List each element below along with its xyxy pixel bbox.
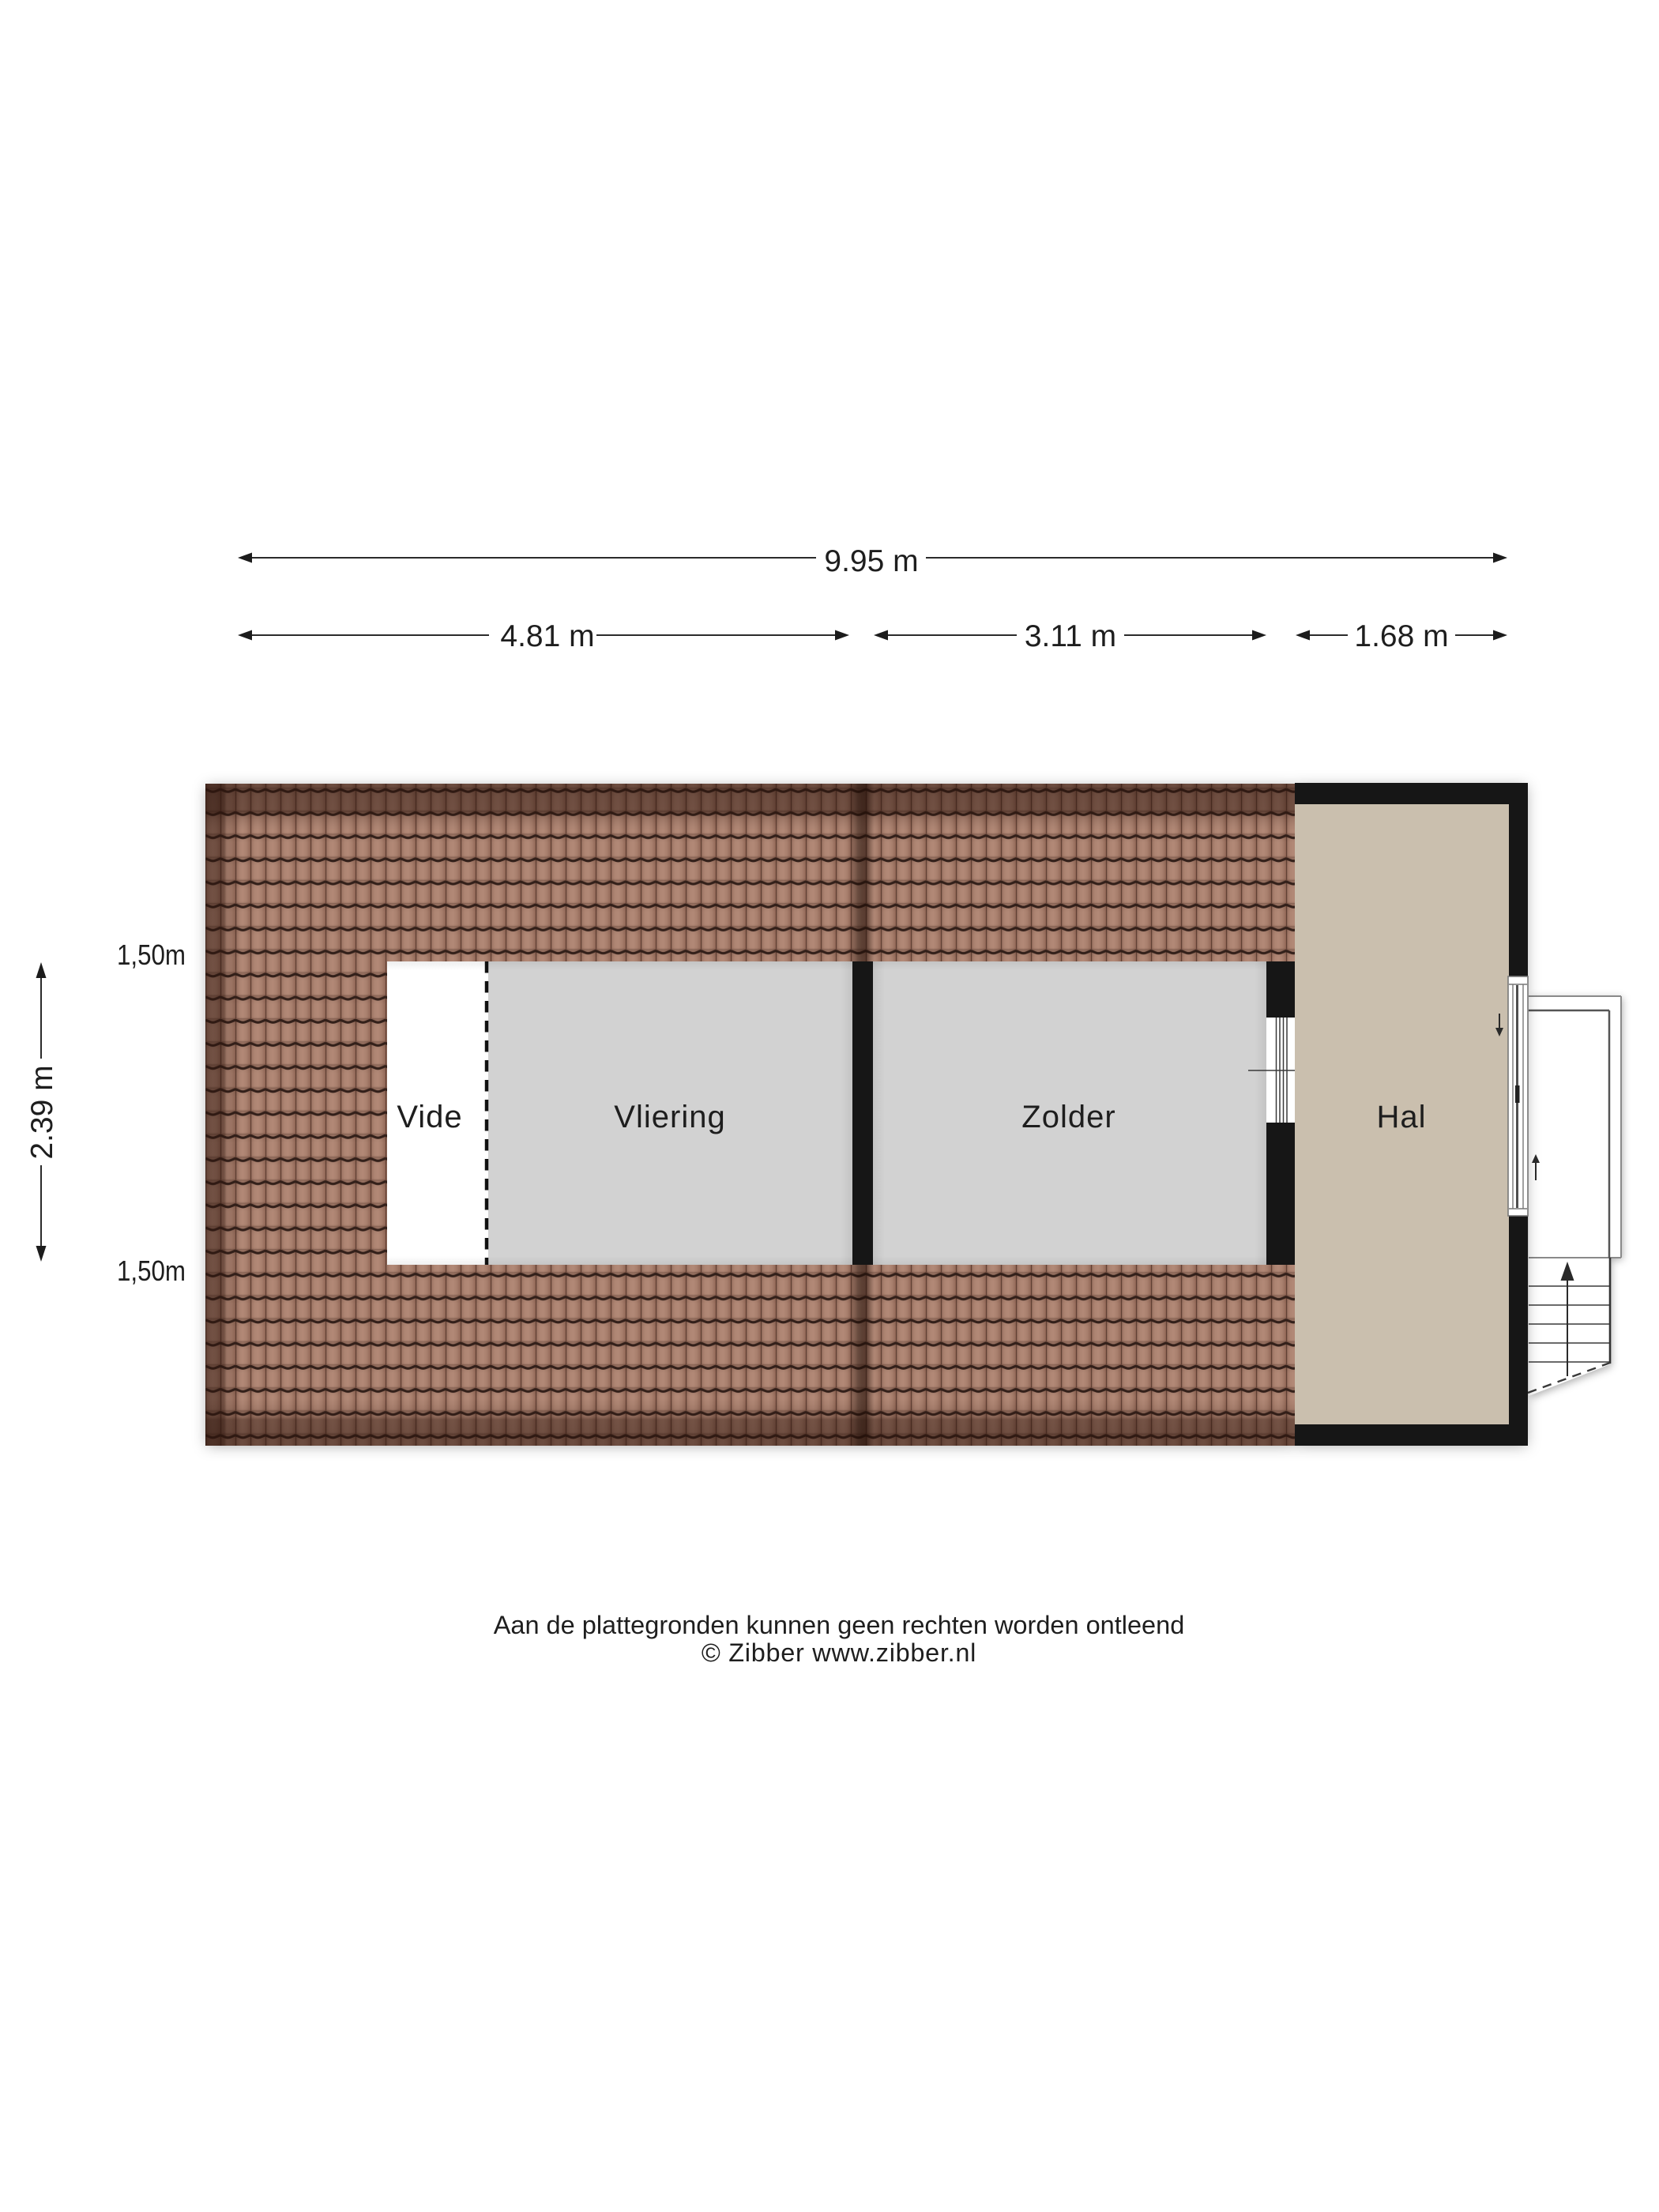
svg-text:3.11 m: 3.11 m [1025, 619, 1116, 653]
svg-text:© Zibber www.zibber.nl: © Zibber www.zibber.nl [702, 1638, 976, 1667]
svg-text:2.39 m: 2.39 m [25, 1065, 59, 1159]
svg-text:9.95 m: 9.95 m [824, 544, 918, 578]
svg-text:Zolder: Zolder [1021, 1100, 1115, 1134]
svg-text:Vliering: Vliering [614, 1100, 725, 1134]
svg-text:Aan de plattegronden kunnen ge: Aan de plattegronden kunnen geen rechten… [494, 1611, 1185, 1639]
svg-text:1,50m: 1,50m [117, 1255, 186, 1287]
svg-text:Hal: Hal [1376, 1100, 1426, 1134]
svg-text:Vide: Vide [397, 1100, 462, 1134]
svg-text:1,50m: 1,50m [117, 939, 186, 971]
svg-text:1.68 m: 1.68 m [1354, 619, 1448, 653]
svg-text:4.81 m: 4.81 m [500, 619, 594, 653]
